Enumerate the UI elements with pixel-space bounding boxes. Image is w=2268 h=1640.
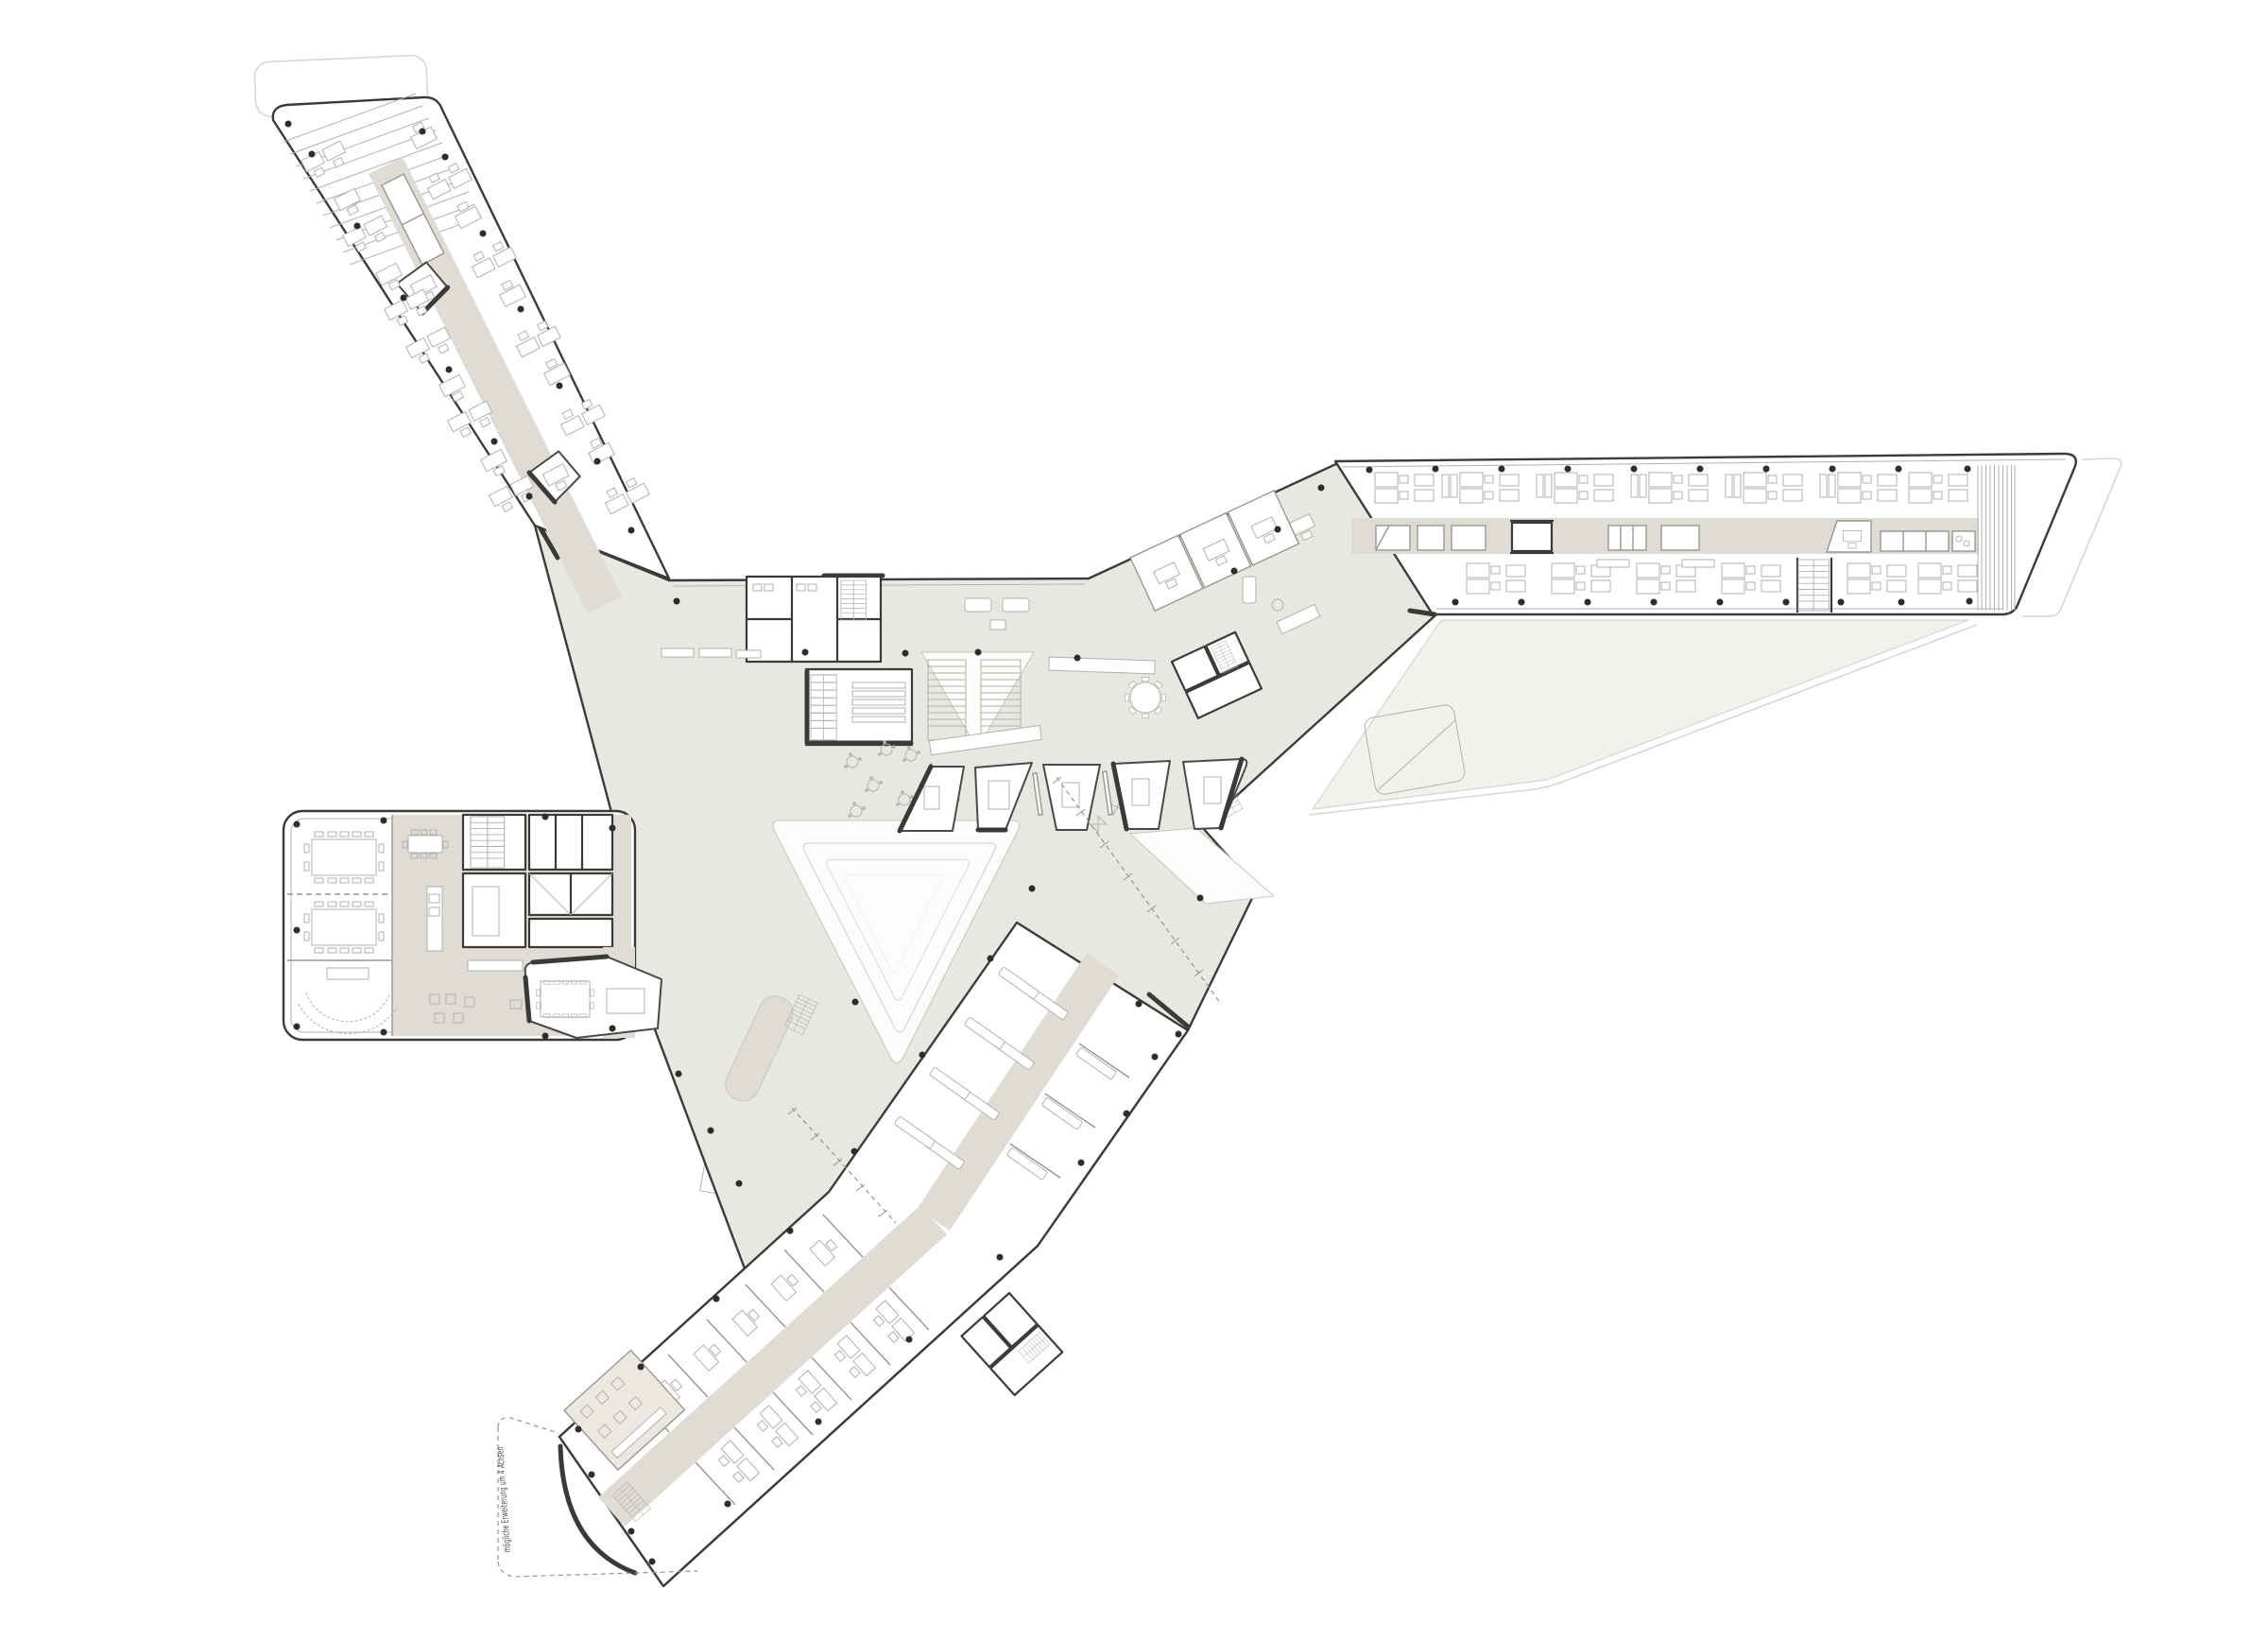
northwest-wing	[273, 94, 669, 613]
west-conference-block	[283, 811, 661, 1040]
meeting-pods	[900, 759, 1246, 831]
floor-plan-page: mögliche Erweiterung um 4 Achsen	[0, 0, 2268, 1640]
conference-table	[304, 832, 384, 883]
block-core	[463, 815, 612, 947]
south-core	[961, 1293, 1062, 1395]
floor-plan-drawing: mögliche Erweiterung um 4 Achsen	[0, 0, 2268, 1640]
bar-counter	[468, 960, 523, 971]
roof-terrace	[1313, 620, 1968, 809]
round-table	[1125, 677, 1165, 717]
conference-table	[304, 902, 384, 953]
